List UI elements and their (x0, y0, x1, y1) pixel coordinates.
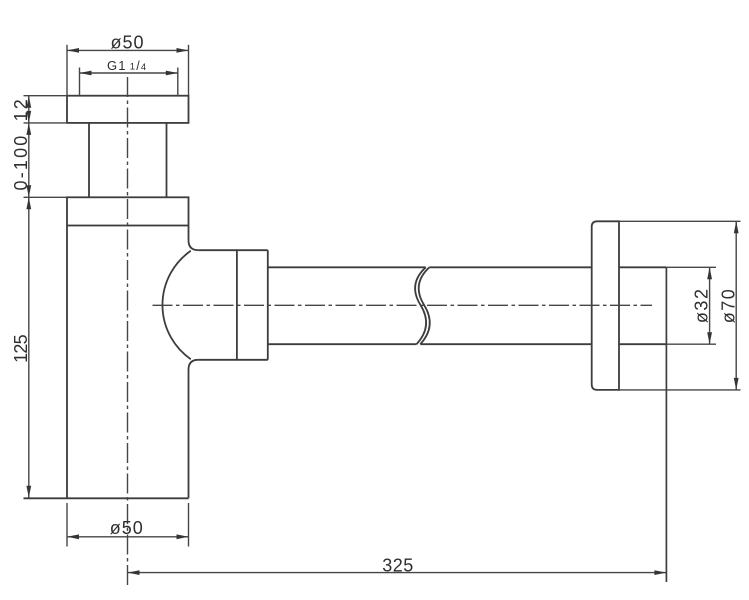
svg-text:12: 12 (11, 97, 31, 121)
svg-text:125: 125 (11, 334, 31, 362)
svg-text:G11/4: G11/4 (107, 58, 147, 73)
svg-text:0-100: 0-100 (11, 133, 31, 190)
svg-text:ø50: ø50 (110, 518, 144, 538)
svg-text:ø32: ø32 (692, 288, 712, 324)
svg-text:ø70: ø70 (719, 288, 739, 324)
svg-text:ø50: ø50 (110, 32, 144, 52)
svg-text:325: 325 (382, 555, 414, 575)
